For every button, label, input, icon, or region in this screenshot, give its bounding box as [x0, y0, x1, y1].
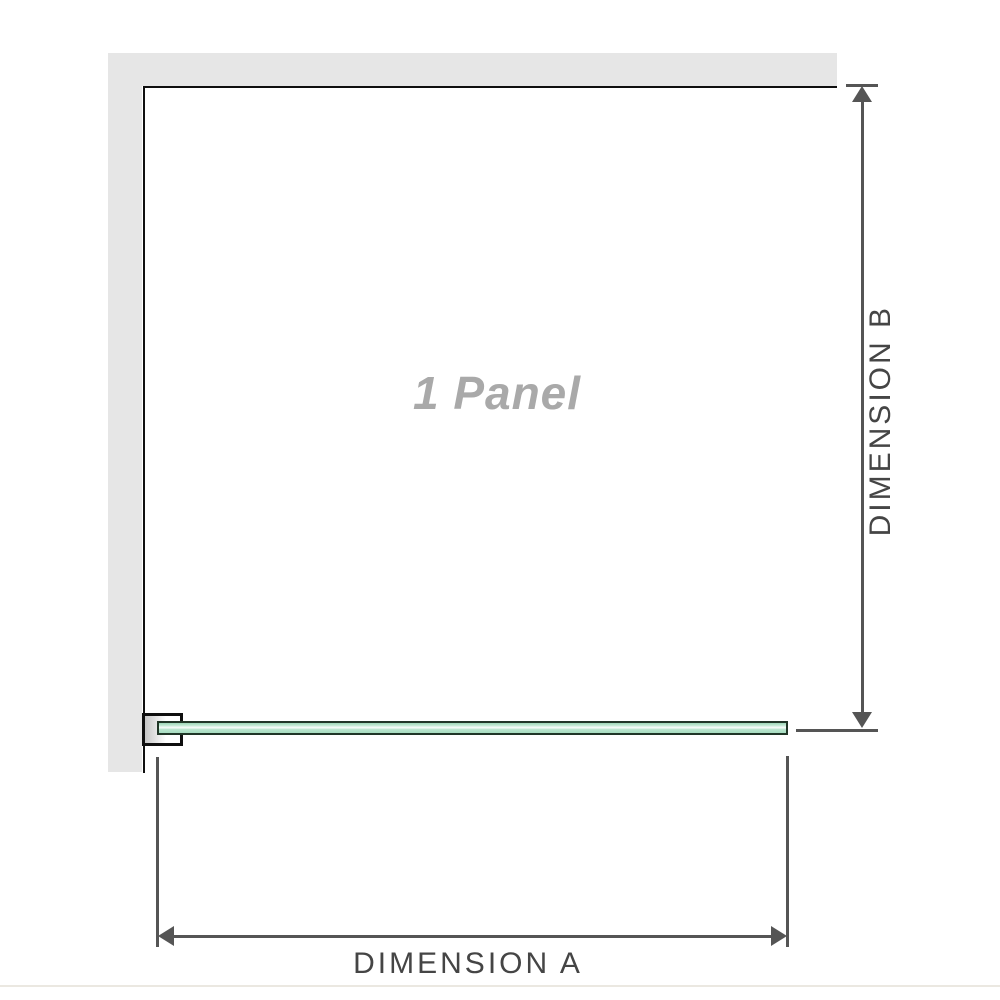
bottom-divider: [0, 985, 1000, 987]
glass-panel-bar: [157, 721, 788, 735]
dimension-b-label: DIMENSION B: [864, 305, 898, 536]
panel-label: 1 Panel: [377, 366, 617, 420]
dimension-a-extension-right: [786, 756, 789, 947]
dimension-a-label: DIMENSION A: [318, 947, 618, 981]
arrow-right-icon: [771, 926, 787, 946]
wall-segment-top: [108, 53, 837, 86]
dimension-a-line: [171, 935, 772, 938]
arrow-left-icon: [158, 926, 174, 946]
panel-diagram: 1 Panel DIMENSION B DIMENSION A: [0, 0, 1000, 1000]
arrow-down-icon: [852, 712, 872, 728]
arrow-up-icon: [852, 86, 872, 102]
panel-outline: [143, 86, 837, 773]
dimension-b-tick-bottom: [796, 729, 878, 732]
wall-segment-left: [108, 53, 142, 772]
dimension-a-extension-left: [156, 757, 159, 947]
